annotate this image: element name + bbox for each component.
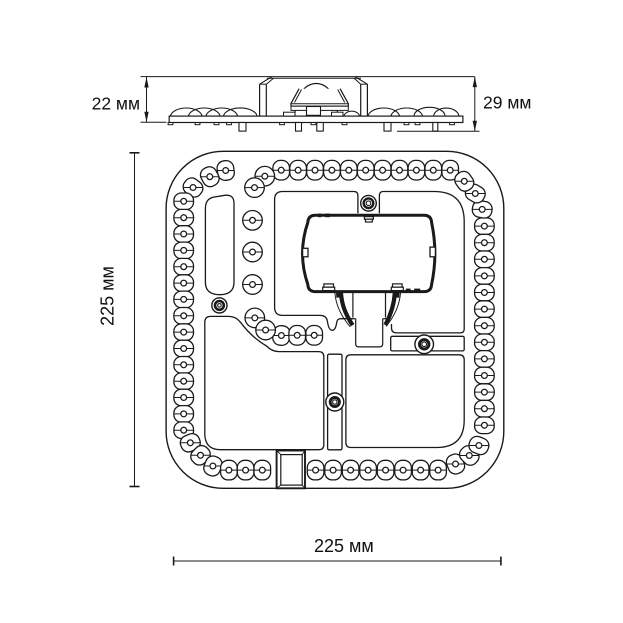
svg-text:225 мм: 225 мм [314,536,374,556]
svg-text:29 мм: 29 мм [483,93,531,113]
svg-text:225 мм: 225 мм [98,266,118,326]
svg-text:22 мм: 22 мм [92,94,140,114]
